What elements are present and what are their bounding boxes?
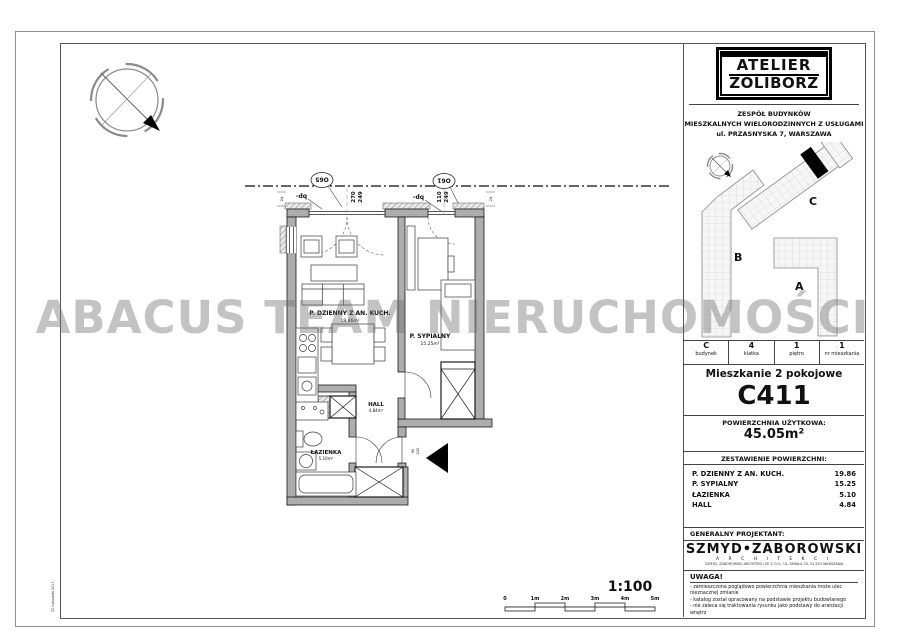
svg-text:110: 110 [437, 191, 443, 203]
notice-item: - nie zaleca się traktowania rysunku jak… [690, 604, 858, 617]
atelier-zoliborz-logo: ATELIER ŻOLIBORZ [716, 47, 831, 100]
side-window [287, 227, 296, 253]
svg-text:4m: 4m [621, 596, 630, 602]
designer-address: SZMYD, ZABOROWSKI ARCHITEKCI SP. Z O.O.,… [684, 562, 864, 566]
corner-dim-right: 24 [488, 196, 493, 201]
table-row: P. SYPIALNY 15.25 [692, 479, 856, 489]
unit-floor-cell: 1 piętro [775, 341, 820, 364]
margin-note: 22 listopada 2011 [51, 581, 55, 612]
usable-area-label: POWIERZCHNIA UŻYTKOWA: [684, 419, 864, 427]
catalog-sheet: { "watermark": "ABACUS TEAM NIERUCHOMOŚC… [0, 0, 905, 640]
designer-name: SZMYD•ZABOROWSKI [684, 542, 864, 557]
entry-door-width: 90 [411, 448, 415, 453]
unit-building-cell: C budynek [684, 341, 729, 364]
svg-text:270: 270 [351, 191, 357, 203]
logo-line-2: ŻOLIBORZ [729, 76, 818, 92]
project-address: ZESPÓŁ BUDYNKÓW MIESZKALNYCH WIELORODZIN… [684, 105, 864, 142]
wall-note-right: -dq [413, 194, 424, 201]
building-c-label: C [809, 195, 817, 208]
table-row: P. DZIENNY Z AN. KUCH. 19.86 [692, 469, 856, 479]
building-b-outline [702, 170, 764, 337]
entrance-arrow: 90 200 [411, 443, 448, 473]
room-living-area: 19.86m² [340, 318, 359, 324]
window-ref-2: O61 [437, 177, 450, 184]
svg-text:5m: 5m [651, 596, 660, 602]
corner-dim-left: 24 [279, 196, 284, 201]
table-row: ŁAZIENKA 5.10 [692, 490, 856, 500]
project-line-1: ZESPÓŁ BUDYNKÓW [684, 109, 864, 119]
unit-number-cell: 1 nr mieszkania [820, 341, 864, 364]
breakdown-heading: ZESTAWIENIE POWIERZCHNI: [684, 451, 864, 464]
svg-text:0: 0 [503, 596, 507, 602]
usable-area: POWIERZCHNIA UŻYTKOWA: 45.05m² [684, 415, 864, 451]
apartment-type: Mieszkanie 2 pokojowe [684, 365, 864, 382]
site-plan: C B A [684, 142, 864, 340]
svg-text:249: 249 [444, 191, 450, 203]
designer-heading: GENERALNY PROJEKTANT: [684, 527, 864, 540]
notice-box: UWAGA! - zamieszczona poglądowo powierzc… [684, 570, 864, 617]
notice-item: - zamieszczona poglądowo powierzchnia mi… [690, 585, 858, 598]
scale-bar [505, 603, 655, 611]
room-bedroom-area: 15.25m² [420, 341, 439, 347]
title-block-panel: ATELIER ŻOLIBORZ ZESPÓŁ BUDYNKÓW MIESZKA… [683, 43, 864, 617]
wall-note-left: -dq [296, 193, 307, 200]
building-a-label: A [795, 280, 804, 293]
table-row: HALL 4.84 [692, 500, 856, 510]
room-hall-area: 4.84m² [369, 408, 384, 413]
front-windows [309, 212, 455, 215]
building-a-outline [774, 238, 837, 336]
scale-indicator: 1:100 0 1m 2m 3m 4m 5m [503, 579, 659, 611]
usable-area-value: 45.05m² [684, 427, 864, 442]
svg-text:1m: 1m [531, 596, 540, 602]
room-area-table: P. DZIENNY Z AN. KUCH. 19.86 P. SYPIALNY… [684, 464, 864, 510]
svg-text:249: 249 [358, 191, 364, 203]
scale-text: 1:100 [608, 579, 653, 595]
north-arrow-icon [91, 64, 163, 136]
unit-staircase-cell: 4 klatka [729, 341, 774, 364]
entry-door-height: 200 [416, 447, 420, 455]
apartment-id: C411 [684, 382, 864, 415]
svg-text:2m: 2m [561, 596, 570, 602]
window-ref-1: O65 [315, 176, 328, 183]
building-b-label: B [734, 251, 742, 264]
designer-block: SZMYD•ZABOROWSKI A R C H I T E K C I SZM… [684, 540, 864, 570]
site-compass-icon [708, 154, 733, 179]
svg-text:3m: 3m [591, 596, 600, 602]
room-living-name: P. DZIENNY Z AN. KUCH. [309, 310, 390, 317]
unit-location-table: C budynek 4 klatka 1 piętro 1 nr mieszka… [684, 340, 864, 365]
room-bath-area: 5.10m² [319, 456, 334, 461]
notice-title: UWAGA! [690, 573, 858, 583]
room-bedroom-name: P. SYPIALNY [410, 333, 451, 340]
project-line-2: MIESZKALNYCH WIELORODZINNYCH Z USŁUGAMI [684, 119, 864, 129]
project-line-3: ul. PRZASNYSKA 7, WARSZAWA [684, 129, 864, 139]
